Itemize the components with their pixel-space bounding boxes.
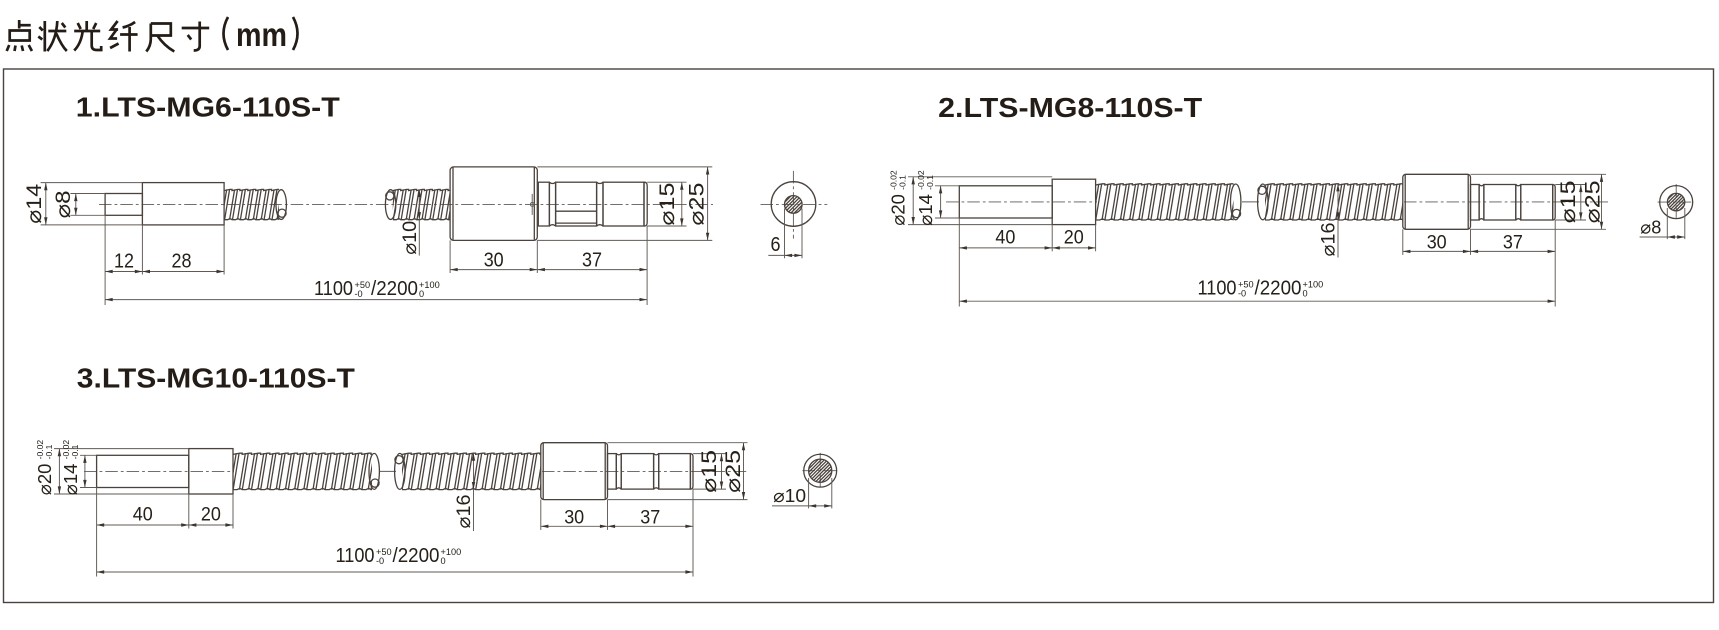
- svg-text:3.LTS-MG10-110S-T: 3.LTS-MG10-110S-T: [77, 362, 355, 393]
- svg-text:1100: 1100: [336, 545, 375, 567]
- svg-text:⌀20: ⌀20: [34, 464, 55, 496]
- svg-text:12: 12: [114, 250, 134, 273]
- svg-text:⌀25: ⌀25: [1582, 180, 1605, 223]
- svg-text:⌀14: ⌀14: [23, 183, 46, 223]
- svg-text:-0: -0: [1238, 288, 1246, 298]
- svg-text:0: 0: [1303, 288, 1308, 298]
- svg-text:6: 6: [771, 233, 781, 256]
- svg-text:1.LTS-MG6-110S-T: 1.LTS-MG6-110S-T: [76, 91, 340, 122]
- svg-text:-0.1: -0.1: [70, 444, 80, 459]
- svg-text:-0: -0: [376, 556, 384, 566]
- svg-text:1100: 1100: [314, 278, 353, 300]
- svg-text:⌀8: ⌀8: [1640, 217, 1661, 237]
- svg-text:⌀25: ⌀25: [722, 450, 745, 493]
- svg-text:20: 20: [1064, 228, 1084, 249]
- svg-text:⌀8: ⌀8: [52, 190, 75, 218]
- svg-text:0: 0: [419, 289, 424, 299]
- svg-text:2.LTS-MG8-110S-T: 2.LTS-MG8-110S-T: [938, 92, 1202, 123]
- svg-text:40: 40: [995, 228, 1015, 249]
- svg-text:⌀15: ⌀15: [698, 450, 721, 493]
- svg-text:⌀15: ⌀15: [656, 183, 679, 226]
- svg-text:-0.1: -0.1: [44, 444, 54, 459]
- svg-text:mm: mm: [236, 16, 287, 53]
- svg-text:30: 30: [1427, 232, 1447, 253]
- svg-text:37: 37: [582, 249, 602, 272]
- svg-text:⌀16: ⌀16: [1319, 223, 1340, 257]
- svg-text:/2200: /2200: [393, 545, 440, 567]
- svg-text:⌀20: ⌀20: [888, 194, 909, 226]
- svg-text:⌀10: ⌀10: [400, 221, 421, 255]
- svg-text:37: 37: [640, 507, 660, 528]
- svg-text:/2200: /2200: [1255, 278, 1302, 300]
- svg-text:40: 40: [133, 505, 153, 526]
- svg-text:/2200: /2200: [371, 278, 418, 300]
- svg-text:30: 30: [484, 249, 504, 272]
- svg-text:0: 0: [441, 556, 446, 566]
- svg-text:⌀25: ⌀25: [685, 183, 708, 226]
- svg-text:⌀14: ⌀14: [915, 194, 936, 226]
- svg-text:⌀15: ⌀15: [1557, 180, 1580, 223]
- svg-text:-0.1: -0.1: [925, 175, 935, 190]
- svg-text:⌀10: ⌀10: [773, 486, 806, 506]
- svg-text:30: 30: [564, 507, 584, 528]
- svg-text:-0.1: -0.1: [898, 175, 908, 190]
- svg-text:20: 20: [201, 505, 221, 526]
- svg-text:⌀16: ⌀16: [454, 495, 475, 529]
- svg-text:28: 28: [172, 250, 192, 273]
- svg-text:-0: -0: [355, 289, 363, 299]
- svg-text:37: 37: [1503, 232, 1523, 253]
- svg-text:⌀14: ⌀14: [60, 464, 81, 496]
- svg-text:1100: 1100: [1198, 278, 1237, 300]
